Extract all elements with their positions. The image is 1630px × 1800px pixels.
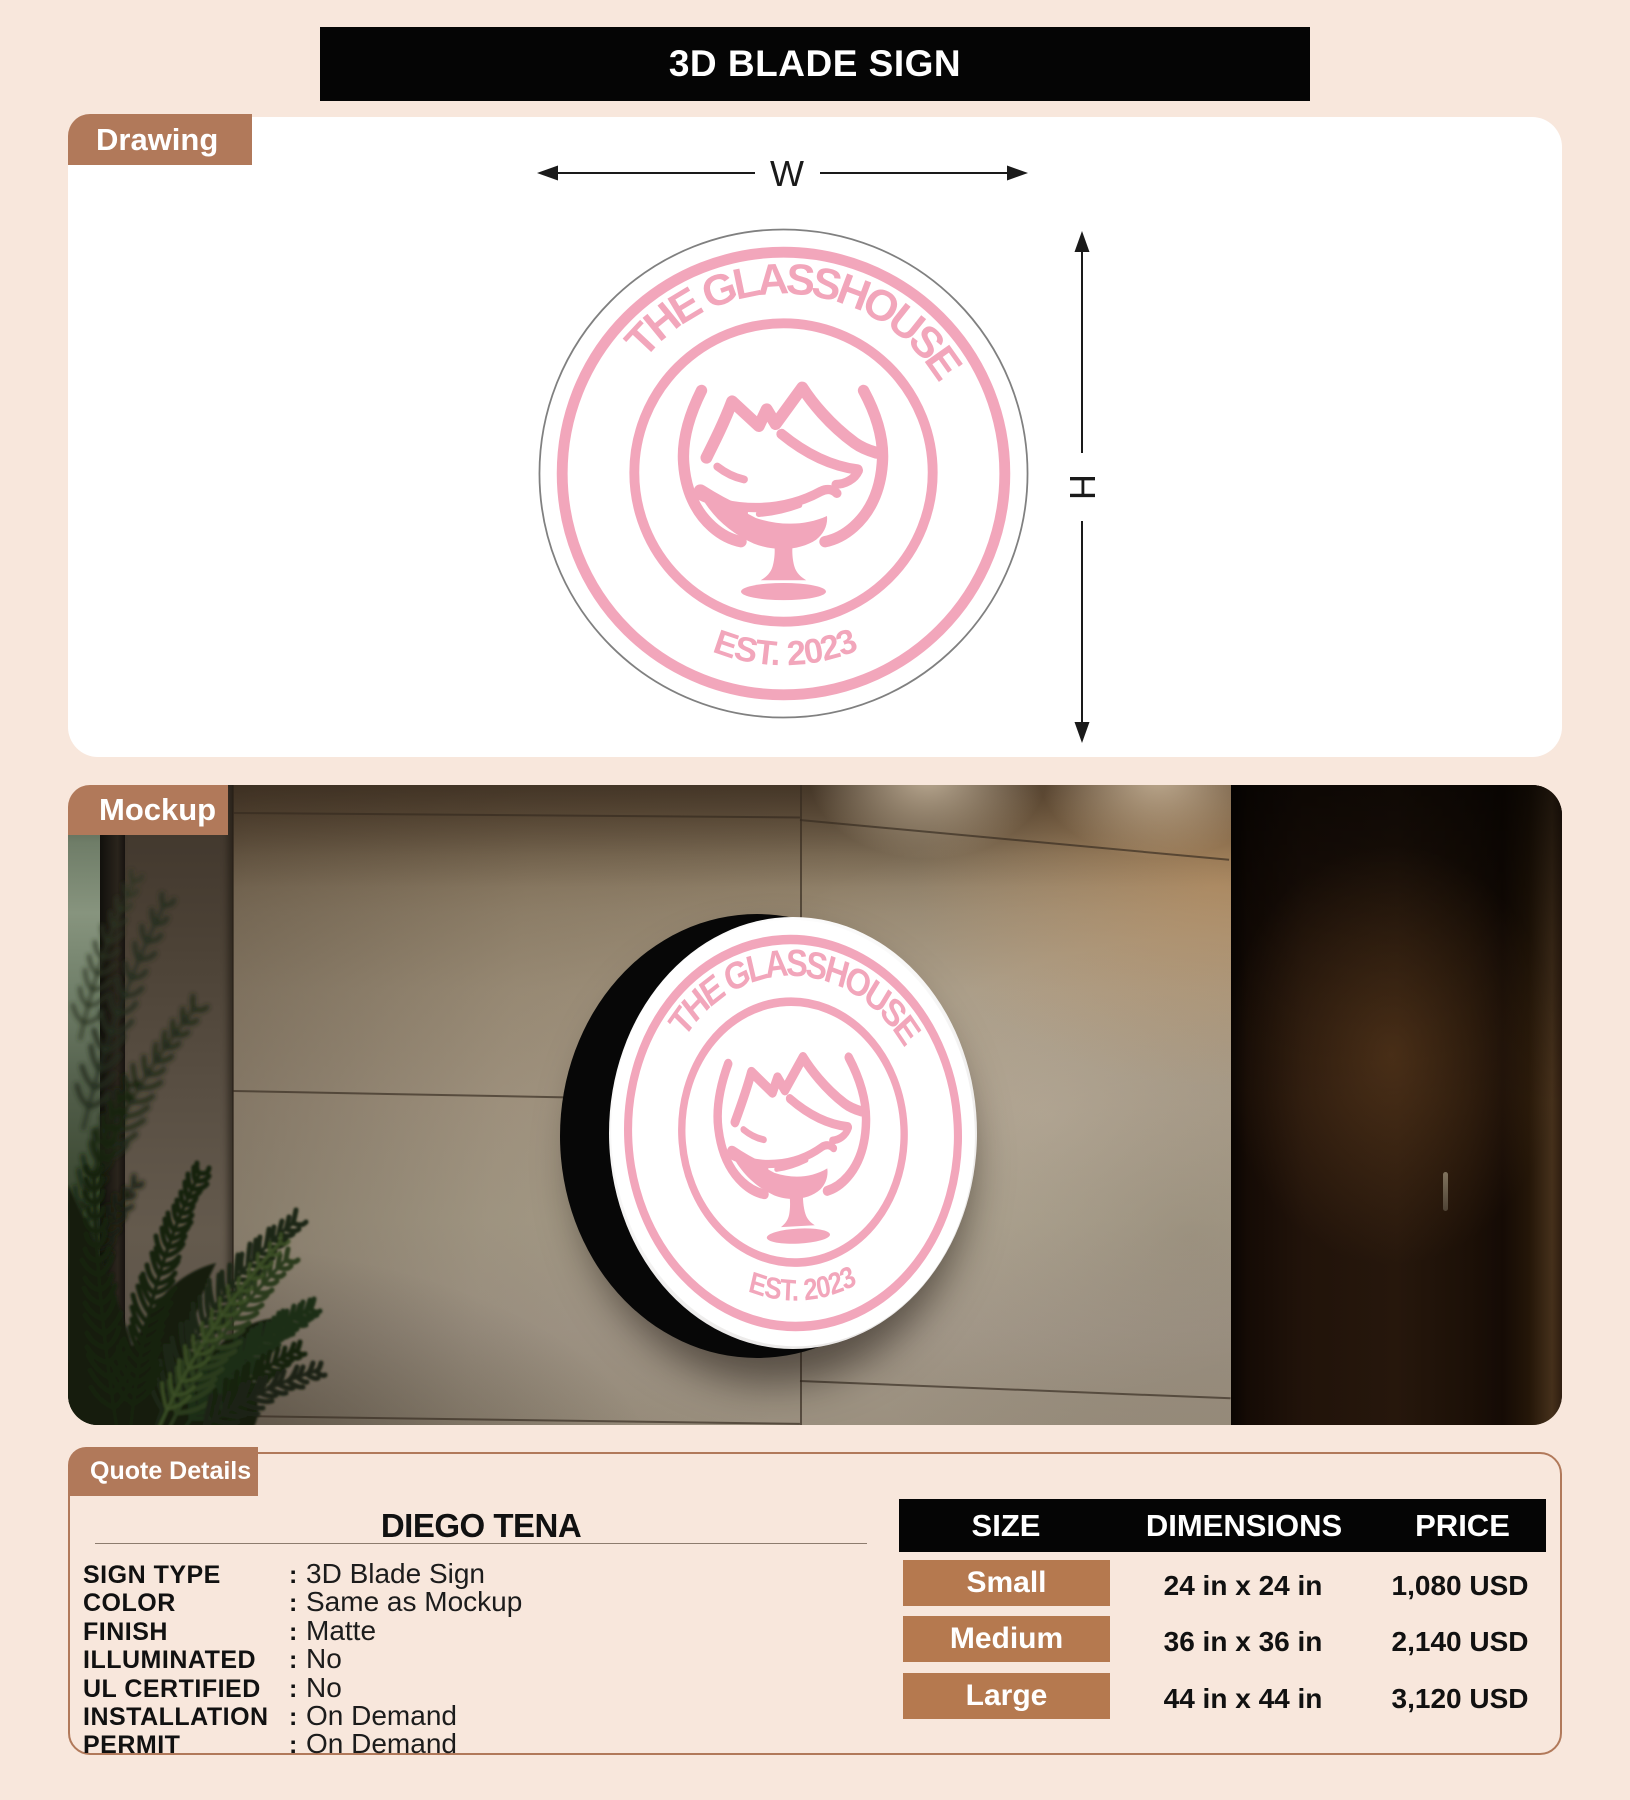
svg-text:W: W bbox=[770, 153, 804, 194]
svg-text:H: H bbox=[1062, 474, 1103, 500]
